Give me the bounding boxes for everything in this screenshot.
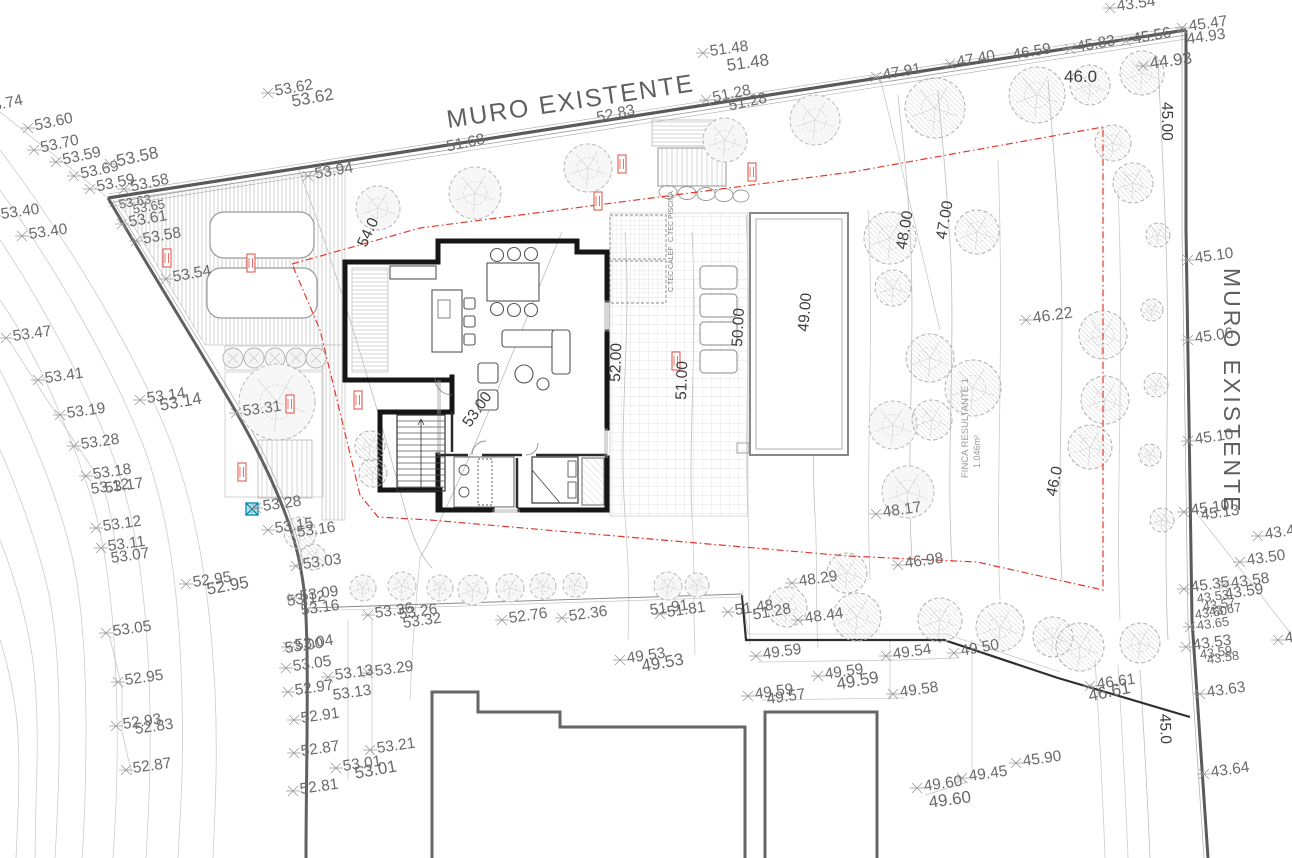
tree-symbol [350,575,376,601]
bedroom [532,457,604,505]
tree-symbol [458,575,488,605]
tree-symbol [955,210,999,254]
reference-tag [163,249,171,267]
tree-symbol [703,118,747,162]
contour-label: 46.0 [1064,67,1097,86]
tree-symbol [355,431,385,461]
tree-symbol [1146,223,1170,247]
reference-tag [238,463,246,481]
contour-label: 45.00 [1158,102,1175,141]
contour-label: 52.00 [607,342,625,382]
boiler-room [610,261,666,303]
dining-set [487,248,539,317]
reference-tag [618,155,626,173]
tree-symbol [1081,376,1129,424]
wardrobe [582,458,604,505]
tree-symbol [1139,444,1161,466]
tree-symbol [1150,508,1174,532]
reference-tag [286,395,294,413]
tree-symbol [875,270,911,306]
tree-symbol [1144,373,1168,397]
tree-symbol [1120,623,1160,663]
survey-marker-blue [246,503,258,515]
tree-symbol [388,572,416,600]
tree-symbol [1068,425,1112,469]
reference-tag [594,192,602,210]
tree-symbol [1009,67,1065,123]
site-plan-drawing: 53.7453.6053.7053.5953.6953.5953.5853.58… [0,0,1292,858]
tree-symbol [945,360,1001,416]
tree-symbol [1056,623,1104,671]
tree-symbol [1113,163,1153,203]
site-plan: 53.7453.6053.7053.5953.6953.5953.5853.58… [0,0,1292,858]
reference-tag [247,254,255,272]
tree-symbol [685,573,709,597]
tree-symbol [427,575,453,601]
kitchen-deck [352,268,388,372]
tree-symbol [530,573,556,599]
reference-tag [354,391,362,409]
tree-symbol [905,78,965,138]
boiler-room-label: C.TEC CALEF [668,246,675,292]
tree-symbol [790,95,840,145]
tree-symbol [496,574,524,602]
tree-symbol [654,572,682,600]
contour-label: 45.0 [1156,714,1174,745]
tree-symbol [563,573,587,597]
tree-symbol [449,167,501,219]
contour-label: 50.00 [729,307,748,347]
tree-symbol [1141,299,1163,321]
tree-symbol [918,598,962,642]
pool-tech-room-label: C.TEC PISCINA [668,191,675,242]
tree-symbol [359,459,387,487]
parcel-area-label: 1.046m² [972,435,982,468]
contour-label: 49.00 [795,292,815,333]
tree-symbol [912,400,952,440]
swimming-pool [737,213,848,455]
car-outline [207,268,317,318]
contour-label: 51.00 [673,360,691,400]
reference-tag [748,163,756,181]
tree-symbol [906,334,954,382]
tree-symbol [869,401,917,449]
tree-symbol [564,144,612,192]
car-outline [210,212,314,258]
pool-tech-room [610,215,666,259]
muro-existente-right-label: MURO EXISTENTE [1219,268,1245,514]
tree-symbol [1095,125,1131,161]
parcel-name-label: FINCA RESULTANTE 1 [960,378,971,478]
